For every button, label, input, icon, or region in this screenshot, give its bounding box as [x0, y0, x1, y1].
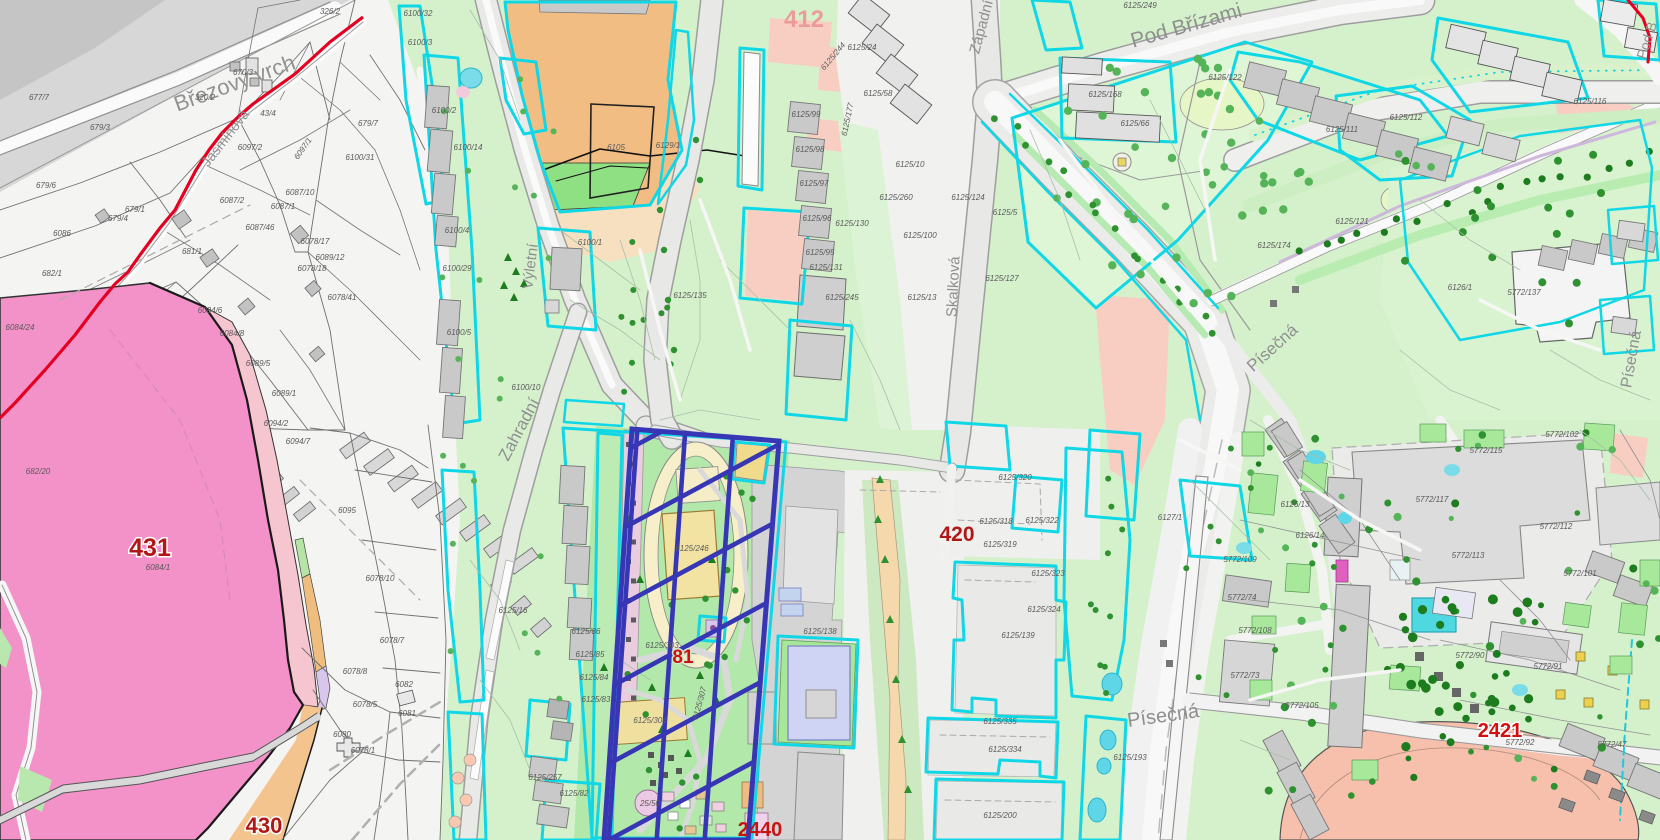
svg-text:6100/4: 6100/4 [445, 226, 470, 235]
svg-text:5772/117: 5772/117 [1416, 495, 1449, 504]
svg-text:6125/84: 6125/84 [580, 673, 609, 682]
svg-text:5772/112: 5772/112 [1540, 522, 1573, 531]
svg-text:326/2: 326/2 [320, 7, 341, 16]
svg-text:6081: 6081 [398, 709, 416, 718]
svg-text:6125/334: 6125/334 [988, 745, 1022, 754]
svg-text:6100/14: 6100/14 [454, 143, 483, 152]
svg-text:320/2: 320/2 [195, 93, 216, 102]
svg-text:6087/2: 6087/2 [220, 196, 245, 205]
svg-text:6125/138: 6125/138 [803, 627, 837, 636]
svg-text:679/7: 679/7 [358, 119, 379, 128]
svg-text:6125/130: 6125/130 [835, 219, 869, 228]
svg-text:6078/7: 6078/7 [380, 636, 405, 645]
svg-text:6087/1: 6087/1 [271, 202, 295, 211]
svg-text:5772/115: 5772/115 [1470, 446, 1503, 455]
svg-text:6087/10: 6087/10 [286, 188, 315, 197]
svg-text:6125/318: 6125/318 [979, 517, 1013, 526]
svg-text:81: 81 [672, 647, 694, 668]
svg-text:25/50: 25/50 [639, 799, 661, 808]
svg-text:6125/323: 6125/323 [1031, 569, 1065, 578]
svg-text:6078/8: 6078/8 [343, 667, 368, 676]
svg-text:6125/335: 6125/335 [983, 717, 1017, 726]
svg-text:6125/304: 6125/304 [633, 716, 667, 725]
svg-text:6100/5: 6100/5 [447, 328, 472, 337]
svg-text:6125/139: 6125/139 [1001, 631, 1035, 640]
svg-text:6125/193: 6125/193 [1113, 753, 1147, 762]
svg-text:6094/7: 6094/7 [286, 437, 311, 446]
svg-text:5772/73: 5772/73 [1231, 671, 1260, 680]
svg-text:6084/1: 6084/1 [146, 563, 170, 572]
svg-text:5772/113: 5772/113 [1452, 551, 1485, 560]
svg-text:6100/3: 6100/3 [408, 38, 433, 47]
svg-text:5772/101: 5772/101 [1563, 569, 1596, 578]
svg-text:6084/8: 6084/8 [220, 329, 245, 338]
svg-text:6125/322: 6125/322 [1025, 516, 1059, 525]
svg-text:6125/320: 6125/320 [998, 473, 1032, 482]
svg-text:6125/112: 6125/112 [1390, 113, 1423, 122]
svg-text:682/1: 682/1 [42, 269, 62, 278]
svg-text:6125/24: 6125/24 [848, 43, 877, 52]
svg-text:6125/96: 6125/96 [803, 214, 832, 223]
svg-text:6125/83: 6125/83 [582, 695, 611, 704]
svg-text:6089/12: 6089/12 [316, 253, 345, 262]
svg-text:679/6: 679/6 [36, 181, 57, 190]
svg-text:5772/105: 5772/105 [1285, 701, 1319, 710]
svg-text:6125/260: 6125/260 [879, 193, 913, 202]
svg-text:6095: 6095 [338, 506, 356, 515]
svg-text:5772/74: 5772/74 [1228, 593, 1257, 602]
svg-text:43/4: 43/4 [260, 109, 276, 118]
svg-text:420: 420 [939, 523, 974, 546]
svg-text:6078/17: 6078/17 [301, 237, 330, 246]
svg-text:5772/102: 5772/102 [1545, 430, 1579, 439]
svg-text:6125/168: 6125/168 [1088, 90, 1122, 99]
svg-text:6125/5: 6125/5 [993, 208, 1018, 217]
svg-text:681/1: 681/1 [182, 247, 202, 256]
svg-text:6125/66: 6125/66 [1121, 119, 1150, 128]
svg-text:6078/41: 6078/41 [328, 293, 357, 302]
svg-text:6125/257: 6125/257 [528, 773, 562, 782]
svg-text:2440: 2440 [738, 819, 783, 840]
svg-text:5772/47: 5772/47 [1598, 740, 1627, 749]
svg-text:6125/246: 6125/246 [675, 544, 709, 553]
svg-text:6125/116: 6125/116 [1574, 97, 1607, 106]
svg-text:6089/5: 6089/5 [246, 359, 271, 368]
svg-text:6087/46: 6087/46 [246, 223, 275, 232]
svg-text:6125/135: 6125/135 [673, 291, 707, 300]
svg-text:5772/90: 5772/90 [1456, 651, 1485, 660]
svg-text:5772/92: 5772/92 [1506, 738, 1535, 747]
svg-text:6125/124: 6125/124 [951, 193, 985, 202]
svg-text:682/20: 682/20 [26, 467, 51, 476]
svg-text:6125/99: 6125/99 [792, 110, 821, 119]
svg-text:6125/100: 6125/100 [903, 231, 937, 240]
svg-text:6100/1: 6100/1 [578, 238, 602, 247]
svg-text:430: 430 [246, 813, 283, 838]
svg-text:679/4: 679/4 [108, 214, 129, 223]
svg-text:6125/127: 6125/127 [985, 274, 1019, 283]
svg-text:5772/108: 5772/108 [1238, 626, 1272, 635]
svg-text:6126/14: 6126/14 [1296, 531, 1325, 540]
svg-text:6125/82: 6125/82 [560, 789, 589, 798]
svg-text:6125/13: 6125/13 [908, 293, 937, 302]
svg-text:6080: 6080 [333, 730, 351, 739]
svg-text:6078/18: 6078/18 [298, 264, 327, 273]
svg-text:6125/85: 6125/85 [576, 650, 605, 659]
svg-text:6082: 6082 [395, 680, 413, 689]
svg-text:670/3: 670/3 [233, 68, 254, 77]
svg-text:6100/29: 6100/29 [443, 264, 472, 273]
svg-text:6129/1: 6129/1 [656, 141, 680, 150]
svg-text:679/1: 679/1 [125, 205, 145, 214]
svg-text:6078/5: 6078/5 [353, 700, 378, 709]
svg-text:Skalková: Skalková [943, 255, 963, 317]
svg-text:6125/174: 6125/174 [1257, 241, 1291, 250]
svg-text:6084/24: 6084/24 [6, 323, 35, 332]
svg-text:6100/31: 6100/31 [346, 153, 375, 162]
svg-text:6100/2: 6100/2 [432, 106, 457, 115]
svg-text:412: 412 [784, 6, 824, 33]
svg-text:6084/6: 6084/6 [198, 306, 223, 315]
svg-text:6125/95: 6125/95 [806, 248, 835, 257]
svg-text:6125/324: 6125/324 [1027, 605, 1061, 614]
svg-text:6125/122: 6125/122 [1208, 73, 1242, 82]
svg-text:6127/1: 6127/1 [1158, 513, 1182, 522]
svg-text:6125/131: 6125/131 [809, 263, 842, 272]
svg-text:6125/249: 6125/249 [1123, 1, 1157, 10]
svg-text:5772/91: 5772/91 [1534, 662, 1563, 671]
svg-text:5772/109: 5772/109 [1223, 555, 1257, 564]
svg-text:6126/1: 6126/1 [1448, 283, 1472, 292]
svg-text:6097/2: 6097/2 [238, 143, 263, 152]
svg-text:6125/10: 6125/10 [896, 160, 925, 169]
svg-text:431: 431 [129, 534, 171, 562]
svg-text:6125/245: 6125/245 [825, 293, 859, 302]
svg-text:6125/319: 6125/319 [983, 540, 1017, 549]
svg-text:6125/16: 6125/16 [499, 606, 528, 615]
svg-text:6094/2: 6094/2 [264, 419, 289, 428]
svg-text:6126/13: 6126/13 [1281, 500, 1310, 509]
svg-text:6100/32: 6100/32 [404, 9, 433, 18]
svg-text:6105: 6105 [607, 143, 625, 152]
svg-text:6125/121: 6125/121 [1335, 217, 1368, 226]
svg-text:6125/303: 6125/303 [645, 641, 679, 650]
svg-text:6125/58: 6125/58 [864, 89, 893, 98]
svg-text:6125/200: 6125/200 [983, 811, 1017, 820]
svg-text:5772/137: 5772/137 [1507, 288, 1541, 297]
svg-text:6125/97: 6125/97 [800, 179, 829, 188]
svg-text:6078/10: 6078/10 [366, 574, 395, 583]
svg-text:677/7: 677/7 [29, 93, 50, 102]
svg-text:6078/1: 6078/1 [351, 746, 375, 755]
svg-text:6125/111: 6125/111 [1326, 125, 1358, 134]
svg-text:679/3: 679/3 [90, 123, 111, 132]
svg-text:6089/1: 6089/1 [272, 389, 296, 398]
svg-text:6086: 6086 [53, 229, 71, 238]
svg-text:6100/10: 6100/10 [512, 383, 541, 392]
svg-text:6125/86: 6125/86 [572, 627, 601, 636]
svg-text:6125/98: 6125/98 [796, 145, 825, 154]
